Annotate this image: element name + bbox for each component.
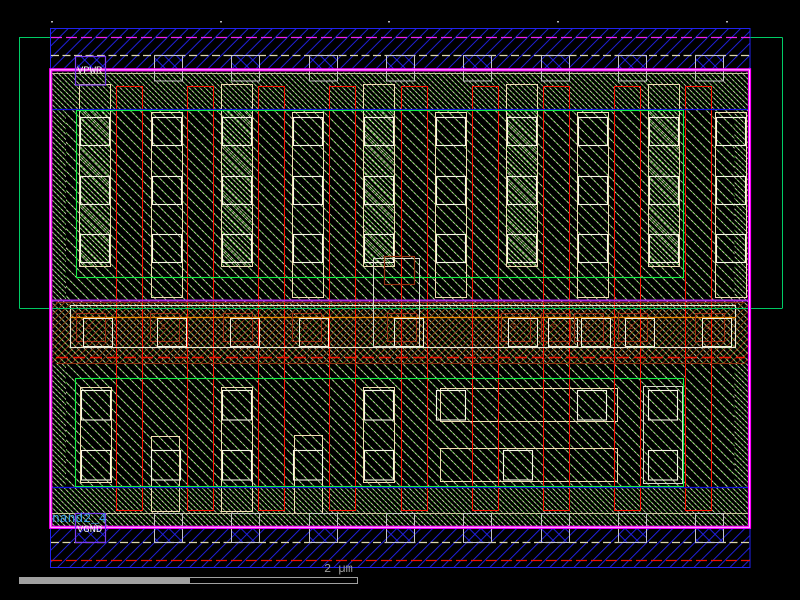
svg-text:S: S — [512, 324, 517, 332]
svg-text:S: S — [303, 324, 308, 332]
svg-text:VPWR: VPWR — [77, 65, 103, 77]
svg-text:S: S — [706, 324, 711, 332]
svg-text:S: S — [161, 324, 166, 332]
svg-text:S: S — [87, 324, 92, 332]
svg-text:S: S — [234, 324, 239, 332]
svg-text:S: S — [629, 324, 634, 332]
svg-text:S: S — [552, 324, 557, 332]
svg-text:S: S — [585, 324, 590, 332]
svg-text:nand2_4: nand2_4 — [52, 511, 107, 526]
svg-text:S: S — [398, 324, 403, 332]
svg-text:2 µm: 2 µm — [324, 562, 353, 576]
